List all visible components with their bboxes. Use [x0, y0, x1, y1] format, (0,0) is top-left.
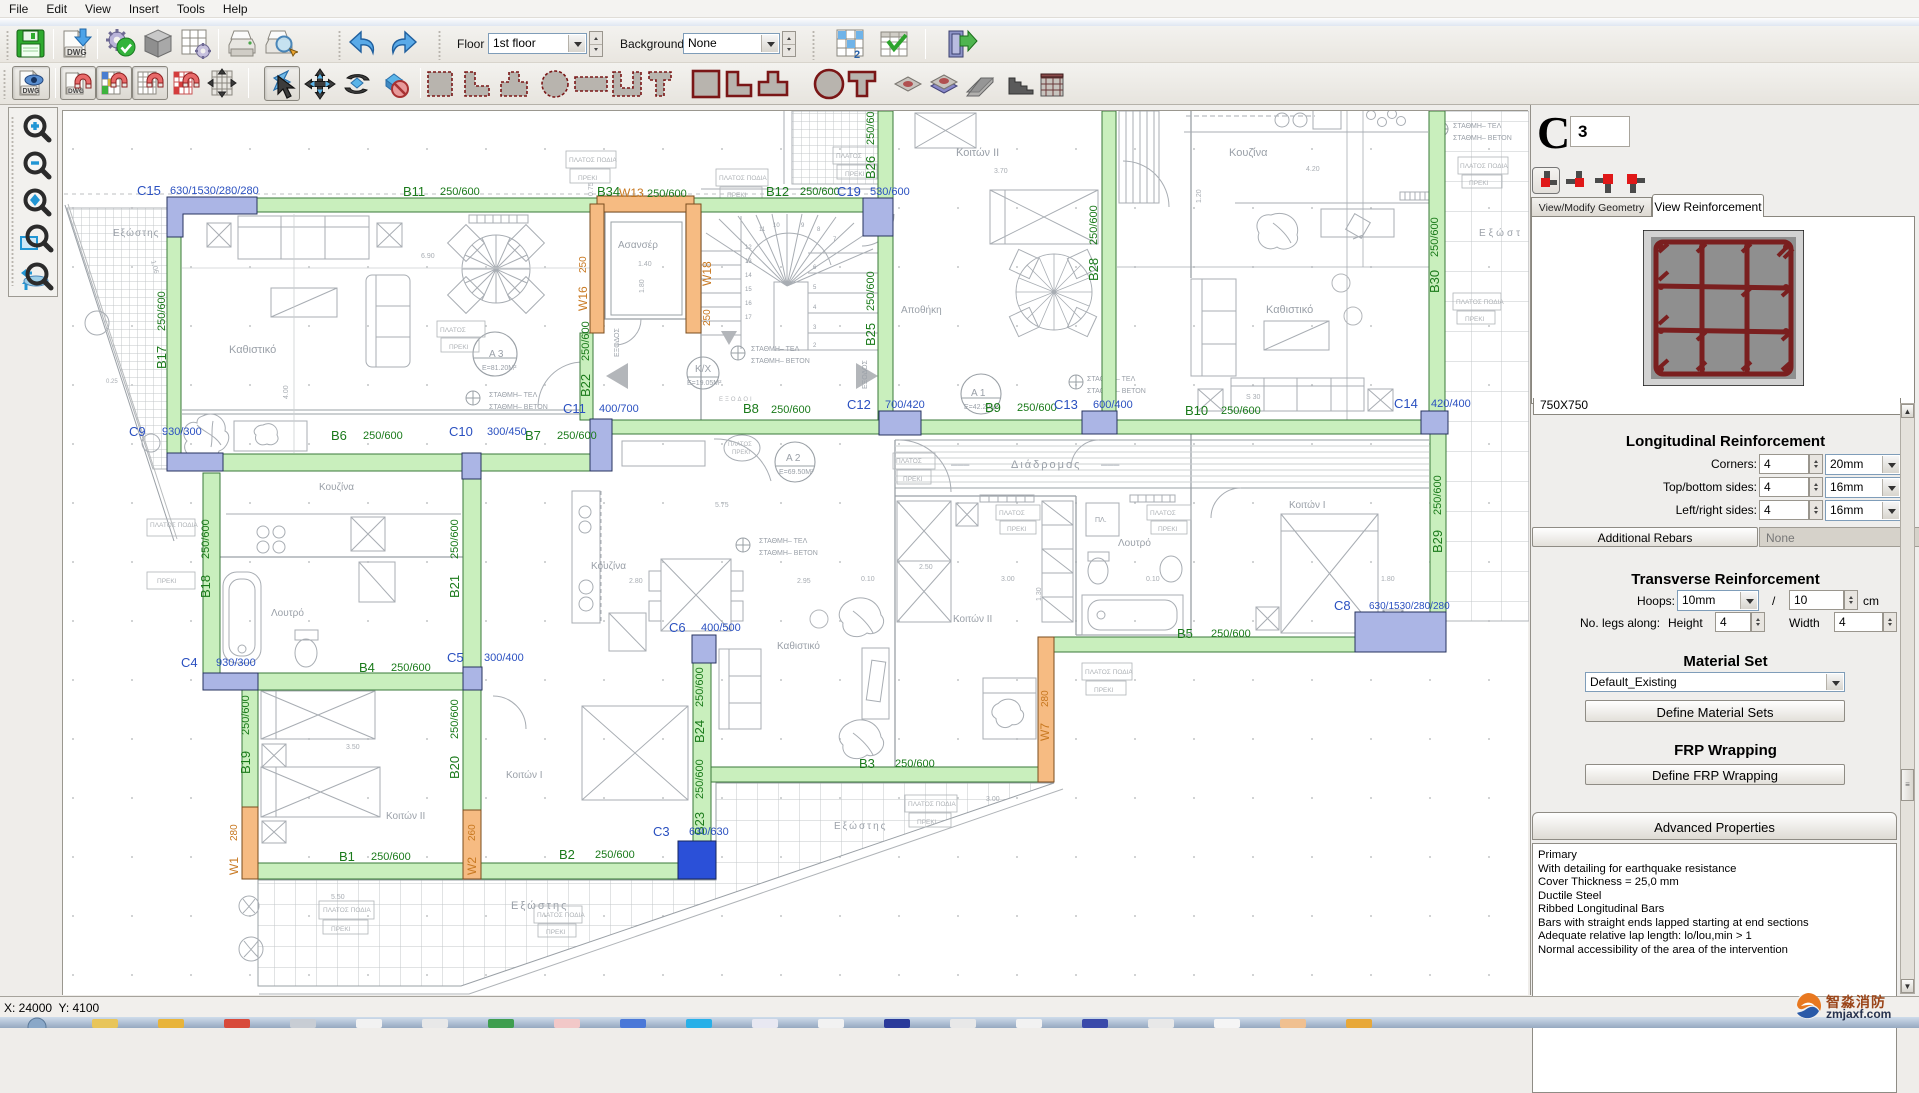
svg-text:ΠΡΕΚΙ: ΠΡΕΚΙ — [732, 450, 750, 456]
svg-text:E=81.20M²: E=81.20M² — [482, 365, 517, 372]
svg-text:ΠΡΕΚΙ: ΠΡΕΚΙ — [917, 819, 937, 826]
svg-text:ΠΛΑΤΟΣ ΠΟΔΙΑ: ΠΛΑΤΟΣ ΠΟΔΙΑ — [537, 912, 585, 919]
svg-text:ΠΡΕΚΙ: ΠΡΕΚΙ — [1007, 526, 1027, 533]
svg-text:630/630: 630/630 — [689, 826, 729, 838]
svg-text:250/600: 250/600 — [156, 291, 168, 331]
svg-text:Εξώστ: Εξώστ — [1479, 227, 1523, 239]
svg-text:530/600: 530/600 — [870, 186, 910, 198]
svg-text:930/300: 930/300 — [216, 657, 256, 669]
svg-text:ΣΤΑΘΜΗ– ΒΕΤΟΝ: ΣΤΑΘΜΗ– ΒΕΤΟΝ — [489, 404, 548, 411]
svg-text:S 30: S 30 — [1246, 394, 1261, 401]
svg-text:C5: C5 — [447, 650, 464, 665]
svg-text:Κοιτών I: Κοιτών I — [506, 769, 543, 781]
svg-text:Εξώστης: Εξώστης — [834, 820, 887, 832]
svg-text:Λουτρό: Λουτρό — [1118, 537, 1151, 549]
svg-text:W18: W18 — [700, 261, 714, 286]
svg-text:C11: C11 — [563, 401, 586, 416]
svg-text:C10: C10 — [449, 424, 473, 439]
svg-text:DWG: DWG — [68, 88, 84, 95]
svg-text:B17: B17 — [154, 346, 169, 369]
svg-text:ΣΤΑΘΜΗ– ΤΕΛ: ΣΤΑΘΜΗ– ΤΕΛ — [489, 392, 538, 399]
svg-text:10: 10 — [773, 223, 780, 229]
svg-text:C13: C13 — [1054, 397, 1078, 412]
svg-text:400/700: 400/700 — [599, 403, 639, 415]
svg-text:ΠΡΕΚΙ: ΠΡΕΚΙ — [1465, 316, 1485, 323]
svg-text:300/400: 300/400 — [484, 652, 524, 664]
svg-text:3.50: 3.50 — [346, 744, 360, 751]
svg-text:2.95: 2.95 — [797, 578, 811, 585]
svg-text:B18: B18 — [198, 575, 213, 598]
svg-text:B4: B4 — [359, 660, 375, 675]
svg-text:DWG: DWG — [23, 88, 41, 95]
svg-text:C8: C8 — [1334, 598, 1351, 613]
svg-text:250: 250 — [578, 256, 589, 273]
svg-text:Καθιστικό: Καθιστικό — [777, 640, 820, 652]
svg-text:930/300: 930/300 — [162, 426, 202, 438]
svg-text:3.00: 3.00 — [986, 796, 1000, 803]
svg-text:250/600: 250/600 — [865, 111, 877, 145]
svg-text:Κουζίνα: Κουζίνα — [319, 481, 354, 493]
svg-text:ΠΡΕΚΙ: ΠΡΕΚΙ — [578, 175, 598, 182]
svg-text:Κουζίνα: Κουζίνα — [591, 560, 626, 572]
svg-text:B25: B25 — [863, 323, 878, 346]
svg-text:Κοιτών II: Κοιτών II — [953, 613, 992, 625]
svg-text:250/600: 250/600 — [800, 186, 840, 198]
svg-text:0.75: 0.75 — [588, 182, 595, 196]
svg-text:250/600: 250/600 — [595, 849, 635, 861]
svg-text:Ασανσέρ: Ασανσέρ — [618, 239, 658, 251]
svg-text:B7: B7 — [525, 428, 541, 443]
svg-text:1.30: 1.30 — [1036, 587, 1043, 601]
svg-text:ΠΡΕΚΙ: ΠΡΕΚΙ — [1469, 180, 1489, 187]
svg-text:–––: ––– — [951, 459, 970, 471]
svg-text:ΠΛΑΤΟΣ ΠΟΔΙΑ: ΠΛΑΤΟΣ ΠΟΔΙΑ — [1460, 163, 1508, 170]
svg-text:250/600: 250/600 — [647, 188, 687, 200]
svg-text:250/600: 250/600 — [449, 519, 461, 559]
svg-text:ΠΡΕΚΙ: ΠΡΕΚΙ — [903, 476, 923, 483]
svg-text:A 3: A 3 — [489, 349, 504, 360]
svg-text:2.80: 2.80 — [629, 578, 643, 585]
svg-text:250/600: 250/600 — [895, 758, 935, 770]
svg-text:630/1530/280/280: 630/1530/280/280 — [170, 185, 259, 197]
svg-text:C14: C14 — [1394, 396, 1418, 411]
svg-text:A 2: A 2 — [786, 453, 801, 464]
svg-text:Καθιστικό: Καθιστικό — [229, 344, 276, 356]
svg-text:4.00: 4.00 — [283, 385, 290, 399]
svg-text:DWG: DWG — [67, 48, 87, 57]
svg-text:B28: B28 — [1086, 258, 1101, 281]
svg-text:17: 17 — [745, 315, 752, 321]
svg-text:ΣΤΑΘΜΗ– ΒΕΤΟΝ: ΣΤΑΘΜΗ– ΒΕΤΟΝ — [751, 358, 810, 365]
svg-text:B34: B34 — [597, 184, 620, 199]
svg-text:Αποθήκη: Αποθήκη — [901, 304, 942, 316]
svg-text:250/600: 250/600 — [1429, 217, 1441, 257]
svg-text:0.10: 0.10 — [1146, 576, 1160, 583]
svg-text:ΣΤΑΘΜΗ– ΤΕΛ: ΣΤΑΘΜΗ– ΤΕΛ — [1453, 123, 1502, 130]
svg-text:ΠΛΑΤΟΣ ΠΟΔΙΑ: ΠΛΑΤΟΣ ΠΟΔΙΑ — [1456, 299, 1504, 306]
svg-text:250/600: 250/600 — [865, 271, 877, 311]
svg-text:13: 13 — [745, 259, 752, 265]
svg-text:6.90: 6.90 — [421, 253, 435, 260]
svg-text:K/X: K/X — [695, 364, 711, 375]
svg-text:0.10: 0.10 — [861, 576, 875, 583]
svg-text:C3: C3 — [653, 824, 670, 839]
svg-text:2: 2 — [854, 49, 860, 61]
svg-text:ΕΞΟΔΟΣ: ΕΞΟΔΟΣ — [862, 360, 869, 389]
svg-text:C19: C19 — [837, 184, 861, 199]
svg-text:12: 12 — [745, 245, 752, 251]
svg-text:11: 11 — [759, 227, 766, 233]
svg-text:Κοιτών II: Κοιτών II — [956, 147, 999, 159]
svg-text:260: 260 — [467, 824, 478, 841]
svg-text:B1: B1 — [339, 849, 355, 864]
svg-text:Διάδρομος: Διάδρομος — [1011, 459, 1081, 471]
svg-text:400/500: 400/500 — [701, 622, 741, 634]
svg-text:W7: W7 — [1038, 723, 1052, 741]
svg-text:Καθιστικό: Καθιστικό — [1266, 304, 1313, 316]
svg-text:W13: W13 — [619, 186, 644, 200]
svg-text:ΣΤΑΘΜΗ– ΒΕΤΟΝ: ΣΤΑΘΜΗ– ΒΕΤΟΝ — [759, 550, 818, 557]
svg-text:16: 16 — [745, 301, 752, 307]
svg-text:250/600: 250/600 — [440, 186, 480, 198]
svg-text:ΠΛΑΤΟΣ ΠΟΔΙΑ: ΠΛΑΤΟΣ ΠΟΔΙΑ — [908, 801, 956, 808]
svg-text:280: 280 — [1040, 690, 1051, 707]
svg-text:15: 15 — [745, 287, 752, 293]
svg-text:ΣΤΑΘΜΗ– ΒΕΤΟΝ: ΣΤΑΘΜΗ– ΒΕΤΟΝ — [1453, 135, 1512, 142]
svg-text:B20: B20 — [447, 756, 462, 779]
svg-text:E=19.05M²: E=19.05M² — [687, 380, 722, 387]
svg-text:ΠΡΕΚΙ: ΠΡΕΚΙ — [331, 926, 351, 933]
svg-text:Κουζίνα: Κουζίνα — [1229, 147, 1268, 159]
svg-text:14: 14 — [745, 273, 752, 279]
svg-text:300/450: 300/450 — [487, 426, 527, 438]
svg-text:250/600: 250/600 — [694, 667, 706, 707]
svg-text:ΠΛΑΤΟΣ ΠΟΔΙΑ: ΠΛΑΤΟΣ ΠΟΔΙΑ — [323, 907, 371, 914]
svg-text:ΠΛΑΤΟΣ: ΠΛΑΤΟΣ — [728, 442, 752, 448]
svg-text:B21: B21 — [447, 575, 462, 598]
svg-text:250/600: 250/600 — [391, 662, 431, 674]
svg-text:Κοιτών II: Κοιτών II — [386, 810, 425, 822]
svg-text:250/600: 250/600 — [1088, 205, 1100, 245]
svg-text:280: 280 — [229, 824, 240, 841]
svg-text:ΠΛΑΤΟΣ ΠΟΔΙΑ: ΠΛΑΤΟΣ ΠΟΔΙΑ — [569, 157, 617, 164]
svg-text:250/600: 250/600 — [580, 321, 592, 361]
svg-text:B19: B19 — [238, 751, 253, 774]
svg-text:B11: B11 — [403, 184, 425, 199]
svg-text:C4: C4 — [181, 655, 198, 670]
svg-text:B26: B26 — [863, 156, 878, 179]
svg-text:–––: ––– — [1101, 459, 1120, 471]
svg-text:ΠΛΑΤΟΣ: ΠΛΑΤΟΣ — [999, 510, 1025, 517]
svg-text:250/600: 250/600 — [240, 695, 252, 735]
svg-text:1.80: 1.80 — [639, 279, 646, 293]
svg-text:ΠΡΕΚΙ: ΠΡΕΚΙ — [845, 171, 865, 178]
svg-text:250/600: 250/600 — [694, 759, 706, 799]
svg-text:ΣΤΑΘΜΗ– ΤΕΛ: ΣΤΑΘΜΗ– ΤΕΛ — [759, 538, 808, 545]
svg-text:1.40: 1.40 — [638, 261, 652, 268]
svg-text:250: 250 — [702, 309, 713, 326]
svg-text:5.50: 5.50 — [331, 894, 345, 901]
svg-text:B8: B8 — [743, 401, 759, 416]
svg-text:250/600: 250/600 — [449, 699, 461, 739]
svg-text:ΠΡΕΚΙ: ΠΡΕΚΙ — [1158, 526, 1178, 533]
svg-text:ΠΡΕΚΙ: ΠΡΕΚΙ — [449, 344, 469, 351]
svg-text:250/600: 250/600 — [1211, 628, 1251, 640]
svg-text:ΠΡΕΚΙ: ΠΡΕΚΙ — [157, 578, 177, 585]
svg-text:420/400: 420/400 — [1431, 398, 1471, 410]
svg-text:A 1: A 1 — [971, 388, 986, 399]
svg-text:W1: W1 — [227, 857, 241, 875]
svg-text:C9: C9 — [129, 424, 146, 439]
svg-text:C12: C12 — [847, 397, 871, 412]
svg-text:0.25: 0.25 — [106, 379, 118, 385]
svg-text:250/600: 250/600 — [200, 519, 212, 559]
svg-text:700/420: 700/420 — [885, 399, 925, 411]
svg-text:ΠΛΑΤΟΣ ΠΟΔΙΑ: ΠΛΑΤΟΣ ΠΟΔΙΑ — [719, 175, 767, 182]
svg-text:ΠΛΑΤΟΣ ΠΟΔΙΑ: ΠΛΑΤΟΣ ΠΟΔΙΑ — [1085, 669, 1133, 676]
svg-text:ΠΛΑΤΟΣ: ΠΛΑΤΟΣ — [1150, 510, 1176, 517]
svg-text:4.20: 4.20 — [1306, 166, 1320, 173]
svg-text:C15: C15 — [137, 183, 161, 198]
svg-text:ΠΡΕΚΙ: ΠΡΕΚΙ — [1094, 687, 1114, 694]
svg-text:250/600: 250/600 — [363, 430, 403, 442]
svg-text:1.80: 1.80 — [1381, 576, 1395, 583]
svg-text:ΠΛΑΤΟΣ: ΠΛΑΤΟΣ — [440, 327, 466, 334]
svg-text:250/600: 250/600 — [1432, 475, 1444, 515]
svg-text:B6: B6 — [331, 428, 347, 443]
svg-text:ΠΛΑΤΟΣ: ΠΛΑΤΟΣ — [896, 458, 922, 465]
svg-text:E=69.50M²: E=69.50M² — [779, 469, 814, 476]
svg-text:B24: B24 — [692, 720, 707, 743]
svg-text:W2: W2 — [465, 857, 479, 875]
svg-text:630/1530/280/280: 630/1530/280/280 — [1369, 601, 1450, 612]
svg-text:C6: C6 — [669, 620, 686, 635]
svg-text:250/600: 250/600 — [557, 430, 597, 442]
svg-text:250/600: 250/600 — [771, 404, 811, 416]
svg-text:B5: B5 — [1177, 626, 1193, 641]
svg-text:Κοιτών I: Κοιτών I — [1289, 499, 1326, 511]
svg-text:600/400: 600/400 — [1093, 399, 1133, 411]
svg-text:B10: B10 — [1185, 403, 1208, 418]
svg-text:2.50: 2.50 — [919, 564, 933, 571]
svg-text:B29: B29 — [1430, 530, 1445, 553]
svg-text:ΠΛ.: ΠΛ. — [1095, 517, 1107, 524]
svg-text:ΠΛΑΤΟΣ ΠΟΔΙΑ: ΠΛΑΤΟΣ ΠΟΔΙΑ — [150, 522, 198, 529]
svg-text:5.75: 5.75 — [715, 502, 729, 509]
svg-text:250/600: 250/600 — [1221, 405, 1261, 417]
svg-text:ΕΞΟΔΟΣ: ΕΞΟΔΟΣ — [614, 328, 621, 357]
svg-text:B3: B3 — [859, 756, 875, 771]
svg-text:Εξώστης: Εξώστης — [113, 227, 159, 239]
svg-text:B9: B9 — [985, 400, 1001, 415]
svg-text:3.00: 3.00 — [1001, 576, 1015, 583]
svg-text:250/600: 250/600 — [1017, 402, 1057, 414]
svg-text:W16: W16 — [576, 286, 590, 311]
svg-text:3.70: 3.70 — [994, 168, 1008, 175]
svg-text:ΣΤΑΘΜΗ– ΤΕΛ: ΣΤΑΘΜΗ– ΤΕΛ — [751, 346, 800, 353]
svg-text:B2: B2 — [559, 847, 575, 862]
svg-text:B12: B12 — [766, 184, 789, 199]
svg-text:250/600: 250/600 — [371, 851, 411, 863]
svg-text:ΠΡΕΚΙ: ΠΡΕΚΙ — [546, 929, 566, 936]
svg-text:Λουτρό: Λουτρό — [271, 607, 304, 619]
svg-text:B22: B22 — [578, 374, 593, 397]
svg-text:1.20: 1.20 — [1196, 189, 1203, 203]
svg-text:B30: B30 — [1427, 270, 1442, 293]
svg-text:ΠΛΑΤΟΣ: ΠΛΑΤΟΣ — [836, 153, 862, 160]
